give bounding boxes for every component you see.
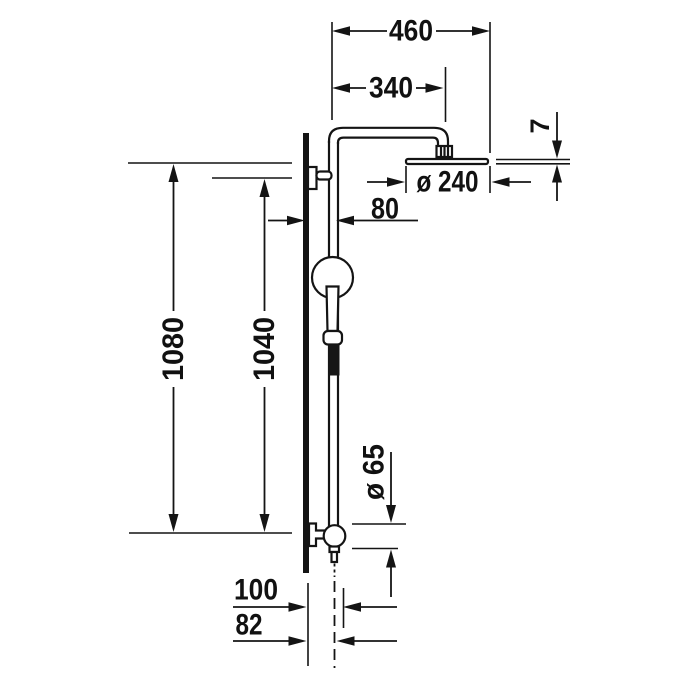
lower-valve-assembly: [309, 524, 345, 578]
spout-body: [332, 552, 338, 562]
hose-nut: [324, 331, 343, 345]
dim-340-label: 340: [369, 72, 413, 105]
dim-1040-label: 1040: [248, 317, 281, 381]
dim-80: 80: [268, 193, 418, 226]
arrowhead-right: [289, 636, 307, 646]
arrowhead-right: [426, 83, 444, 93]
dim-65-label: ø 65: [358, 444, 391, 500]
valve-bracket: [309, 524, 325, 547]
arrowhead-down: [260, 514, 270, 532]
dim-65: ø 65: [352, 444, 406, 597]
arrowhead-left: [337, 636, 355, 646]
arrowhead-down: [552, 141, 562, 159]
arrowhead-right: [472, 26, 490, 36]
arrowhead-left: [332, 83, 350, 93]
arrowhead-right: [387, 177, 405, 187]
arrowhead-up: [386, 550, 396, 568]
valve-knob: [324, 525, 346, 547]
dim-1040: 1040: [212, 178, 292, 532]
hand-shower-handle: [327, 287, 339, 332]
dim-100-label: 100: [234, 574, 278, 607]
dim-1080-label: 1080: [157, 317, 190, 381]
dim-7-label: 7: [525, 118, 555, 133]
dimension-drawing: 460 340 7 ø 240 80: [0, 0, 700, 700]
arrowhead-right: [289, 602, 307, 612]
arrowhead-up: [552, 165, 562, 183]
dim-340: 340: [332, 67, 446, 122]
overhead-shower-plate: [406, 159, 488, 164]
shower-plate: [406, 159, 488, 164]
arrowhead-up: [260, 179, 270, 197]
dim-82: 82: [233, 609, 397, 646]
dim-460-label: 460: [389, 15, 433, 48]
bracket-plate: [308, 167, 317, 189]
dim-240-label: ø 240: [417, 166, 479, 199]
technical-drawing-canvas: 460 340 7 ø 240 80: [0, 0, 700, 700]
arrowhead-left: [332, 26, 350, 36]
hand-shower-assembly: [312, 257, 353, 376]
dim-7: 7: [496, 112, 570, 201]
arrowhead-left: [343, 602, 361, 612]
shower-hose: [328, 345, 340, 376]
arrowhead-right: [287, 216, 305, 226]
shower-arm-inner: [338, 138, 438, 147]
arrowhead-down: [169, 514, 179, 532]
arrowhead-left: [492, 177, 510, 187]
arrowhead-down: [386, 505, 396, 523]
bracket-pin: [317, 172, 332, 180]
arrowhead-up: [169, 164, 179, 182]
shower-arm: [329, 128, 448, 147]
dim-82-label: 82: [236, 609, 263, 642]
